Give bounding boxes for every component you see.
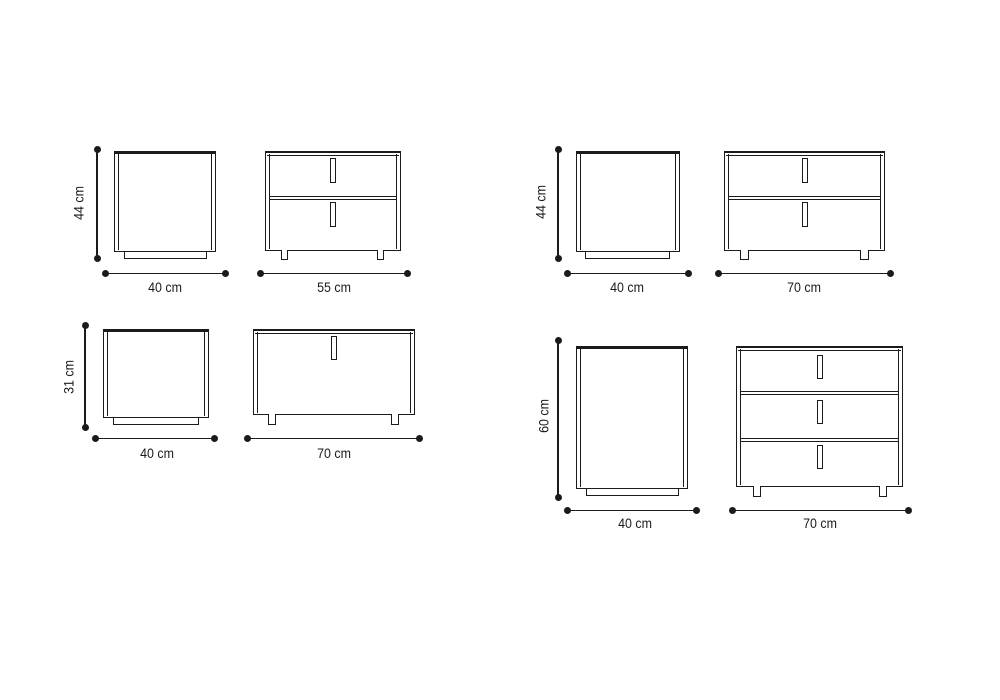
top-edge-line <box>738 350 901 351</box>
front-width-dimension-label: 70 cm <box>803 516 837 531</box>
dimension-endpoint-dot <box>693 507 700 514</box>
drawer-divider <box>741 391 898 395</box>
drawer-divider <box>741 438 898 442</box>
panel-edge-line <box>898 349 899 485</box>
dimension-endpoint-dot <box>729 507 736 514</box>
height-dimension-line <box>557 340 558 497</box>
side-width-dimension-label: 40 cm <box>618 516 652 531</box>
panel-edge-line <box>580 349 581 487</box>
plinth-base <box>586 488 679 496</box>
cabinet-leg <box>753 486 761 497</box>
drawer-handle <box>817 400 823 424</box>
furniture-group-bottom-right: 60 cm40 cm70 cm <box>0 0 1000 700</box>
cabinet-leg <box>879 486 887 497</box>
dimension-endpoint-dot <box>905 507 912 514</box>
dimension-endpoint-dot <box>555 337 562 344</box>
panel-edge-line <box>683 349 684 487</box>
side-view-box <box>576 346 688 489</box>
furniture-dimension-diagram: 44 cm40 cm55 cm44 cm40 cm70 cm31 cm40 cm… <box>0 0 1000 700</box>
drawer-handle <box>817 355 823 379</box>
height-dimension-label: 60 cm <box>537 399 552 433</box>
dimension-endpoint-dot <box>555 494 562 501</box>
dimension-endpoint-dot <box>564 507 571 514</box>
panel-edge-line <box>740 349 741 485</box>
front-width-dimension-line <box>732 510 908 511</box>
drawer-handle <box>817 445 823 469</box>
side-width-dimension-line <box>567 510 696 511</box>
